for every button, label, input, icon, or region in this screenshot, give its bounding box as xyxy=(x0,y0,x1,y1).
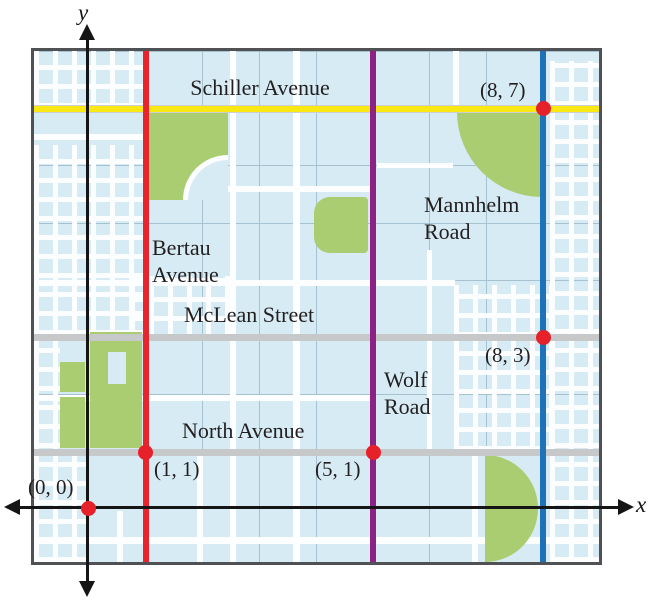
label-bertau-avenue: Bertau Avenue xyxy=(152,234,247,288)
street-mannhelm-road xyxy=(540,51,546,562)
city-blocks xyxy=(34,145,145,335)
point-dot-8-7 xyxy=(536,101,551,116)
point-dot-1-1 xyxy=(138,445,153,460)
park-area xyxy=(60,397,85,448)
minor-street xyxy=(34,134,148,140)
point-label-8-3: (8, 3) xyxy=(485,343,531,368)
point-label-5-1: (5, 1) xyxy=(315,457,361,482)
coordinate-city-map-figure: y x Schiller Avenue Bertau Avenue McLean… xyxy=(0,0,649,601)
x-axis-right-arrow-icon xyxy=(618,499,634,515)
x-axis-left-arrow-icon xyxy=(4,499,20,515)
park-area xyxy=(90,332,142,448)
point-label-0-0: (0, 0) xyxy=(28,475,74,500)
street-north-avenue xyxy=(34,449,599,456)
label-mannhelm-road: Mannhelm Road xyxy=(424,191,549,245)
park-area xyxy=(60,362,85,392)
street-schiller-avenue xyxy=(34,105,599,113)
park-notch-street xyxy=(108,352,126,384)
city-blocks xyxy=(454,285,550,451)
street-bertau-avenue xyxy=(143,51,149,562)
minor-street xyxy=(377,163,453,168)
y-axis-up-arrow-icon xyxy=(79,24,95,40)
label-north-avenue: North Avenue xyxy=(182,417,382,444)
street-mclean-street xyxy=(34,334,599,341)
minor-street xyxy=(453,51,459,112)
city-blocks xyxy=(550,61,599,562)
point-label-8-7: (8, 7) xyxy=(480,78,526,103)
label-mclean-street: McLean Street xyxy=(184,301,384,328)
label-wolf-road: Wolf Road xyxy=(384,366,454,420)
point-dot-0-0 xyxy=(81,501,96,516)
point-dot-8-3 xyxy=(536,330,551,345)
y-axis-label: y xyxy=(78,0,88,26)
point-label-1-1: (1, 1) xyxy=(154,457,200,482)
park-area xyxy=(314,197,368,253)
label-schiller-avenue: Schiller Avenue xyxy=(150,74,370,101)
point-dot-5-1 xyxy=(366,445,381,460)
y-axis-down-arrow-icon xyxy=(79,581,95,597)
minor-street xyxy=(34,395,374,401)
x-axis xyxy=(12,506,624,509)
x-axis-label: x xyxy=(636,492,646,518)
park-area xyxy=(457,112,542,197)
city-blocks xyxy=(34,51,144,108)
